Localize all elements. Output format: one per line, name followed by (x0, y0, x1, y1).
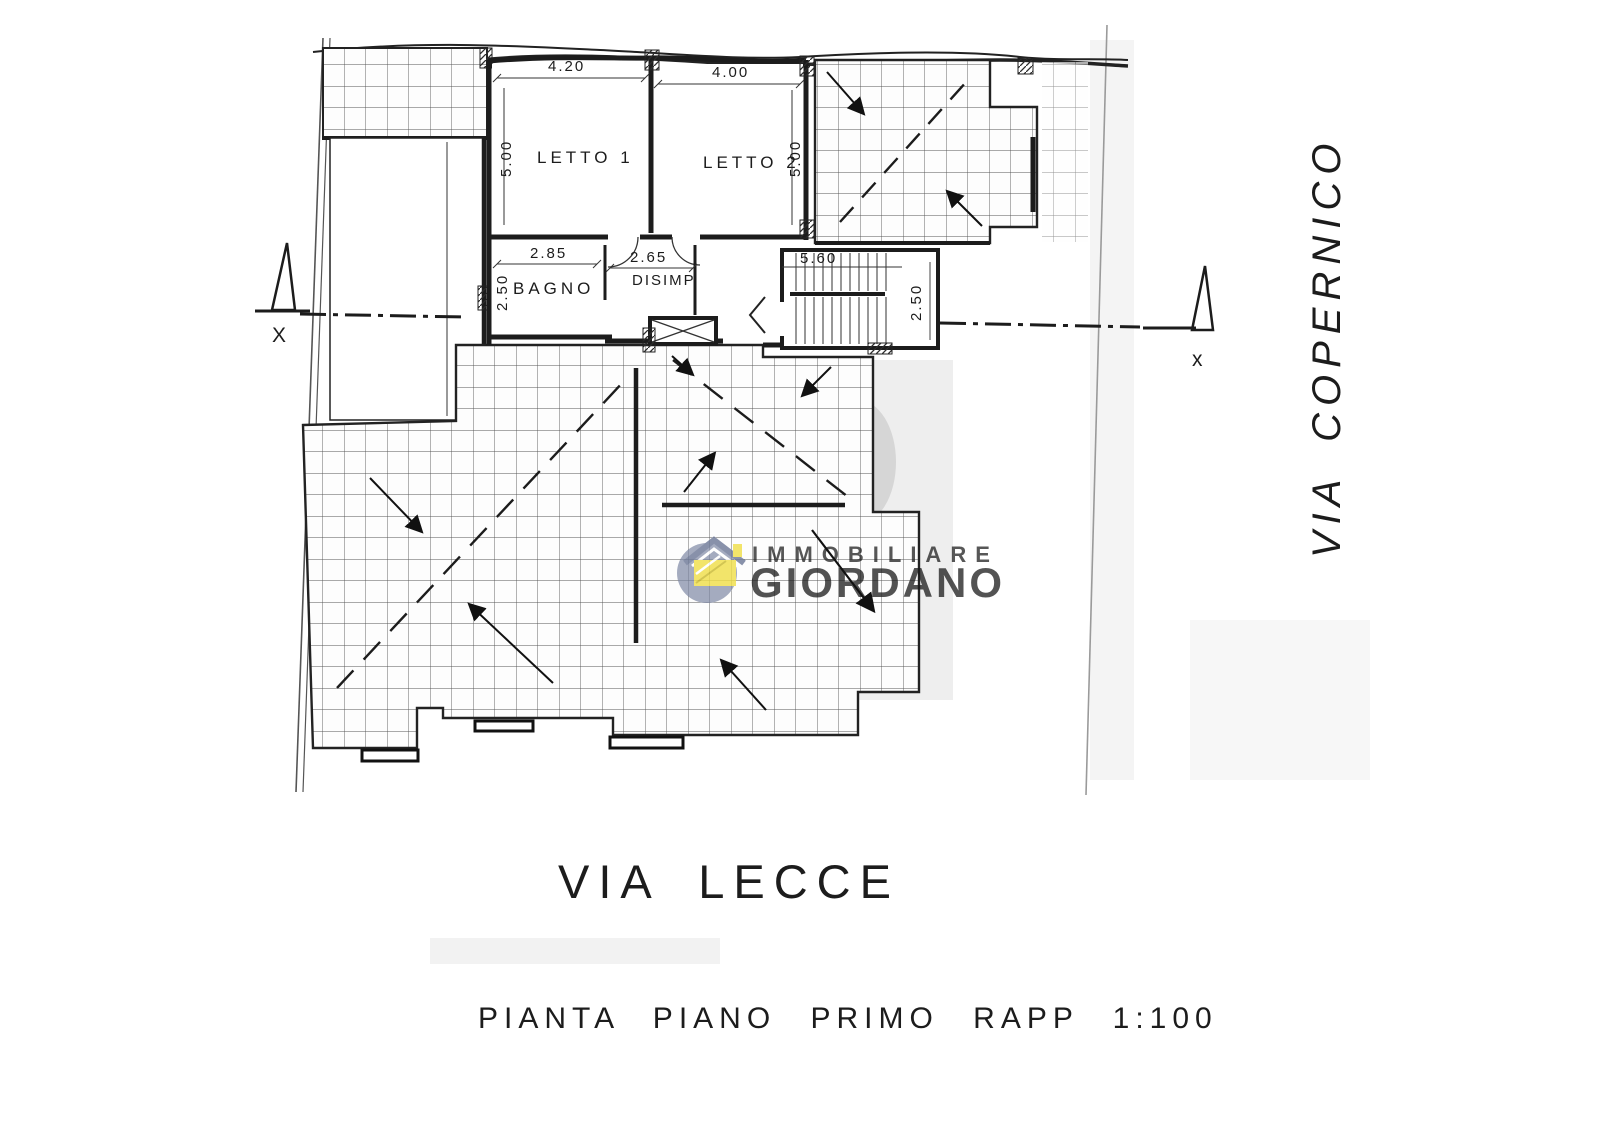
wall-hatch (1018, 58, 1033, 74)
wall-hatch (645, 50, 659, 70)
watermark-agency-line2: GIORDANO (750, 559, 1005, 606)
room-label-disimp: DISIMP (632, 272, 696, 289)
dim-disimp-width: 2.65 (630, 249, 667, 266)
dim-letto1-depth: 5.00 (498, 140, 515, 177)
room-label-bagno: BAGNO (513, 279, 594, 298)
floor-plan-scan: 4.20 4.00 5.00 5.00 2.85 2.65 2.50 5.60 … (0, 0, 1600, 1131)
letto2-floor (655, 64, 803, 234)
room-label-letto2: LETTO 2 (703, 153, 800, 172)
wall-hatch (868, 343, 892, 354)
door-leaf (750, 297, 765, 333)
dim-letto2-width: 4.00 (712, 64, 749, 81)
section-marker-right-label: x (1192, 348, 1204, 371)
bedrooms (489, 50, 814, 345)
terrace-top-right (815, 58, 1088, 243)
plan-caption: PIANTA PIANO PRIMO RAPP 1:100 (478, 1002, 1218, 1035)
street-label-bottom: VIA LECCE (558, 855, 900, 908)
section-marker-right-triangle (1192, 266, 1213, 330)
dim-bagno-width: 2.85 (530, 245, 567, 262)
dim-stairs-depth: 2.50 (908, 284, 925, 321)
dim-letto1-width: 4.20 (548, 58, 585, 75)
room-label-letto1: LETTO 1 (537, 148, 634, 167)
wall-hatch (800, 56, 814, 76)
section-marker-left-triangle (272, 243, 295, 310)
adjacent-terrace-grid (1042, 62, 1088, 242)
dim-stairs-width: 5.60 (800, 250, 837, 267)
street-label-right: VIA COPERNICO (1305, 137, 1349, 558)
stair-door-opening (779, 302, 785, 336)
wall-hatch (643, 328, 655, 352)
logo-house-icon (694, 560, 736, 586)
wall-hatch (800, 220, 814, 238)
dim-bagno-depth: 2.50 (494, 274, 511, 311)
terrace-top-left (322, 48, 492, 138)
section-marker-left-label: X (272, 324, 287, 347)
